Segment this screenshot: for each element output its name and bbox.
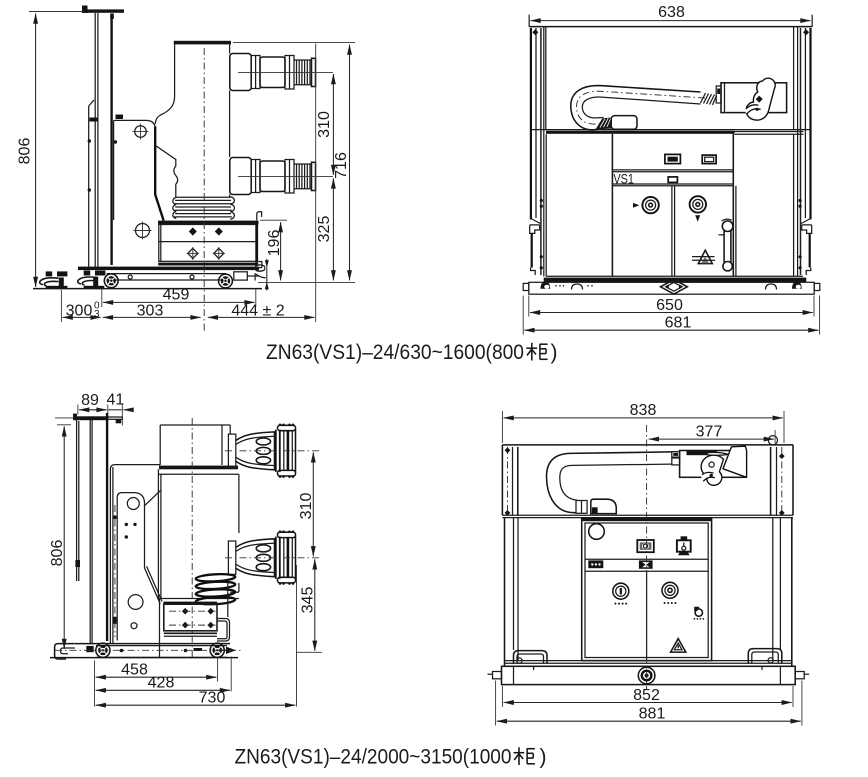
svg-text:ZN63(VS1)–24/630~1600(800: ZN63(VS1)–24/630~1600(800 — [266, 341, 524, 364]
svg-text:377: 377 — [696, 423, 723, 440]
svg-text:730: 730 — [199, 689, 226, 706]
svg-text:444 ± 2: 444 ± 2 — [231, 302, 284, 319]
svg-text:310: 310 — [316, 111, 333, 138]
svg-text:41: 41 — [107, 392, 125, 409]
svg-text:): ) — [551, 341, 558, 364]
svg-text:881: 881 — [639, 705, 666, 722]
svg-text:806: 806 — [49, 540, 66, 567]
svg-text:681: 681 — [665, 314, 692, 331]
svg-text:325: 325 — [316, 216, 333, 243]
svg-text:806: 806 — [17, 138, 34, 165]
svg-text:300: 300 — [66, 302, 93, 319]
svg-text:345: 345 — [300, 587, 317, 614]
svg-text:428: 428 — [148, 675, 175, 692]
svg-text:70: 70 — [252, 264, 269, 282]
svg-text:838: 838 — [630, 402, 657, 419]
svg-text:196: 196 — [266, 230, 283, 257]
svg-text:89: 89 — [81, 392, 99, 409]
svg-text:303: 303 — [137, 302, 164, 319]
svg-text:852: 852 — [633, 687, 660, 704]
svg-text:459: 459 — [163, 287, 190, 304]
svg-text:638: 638 — [658, 4, 685, 21]
svg-text:): ) — [540, 746, 547, 769]
svg-text:458: 458 — [121, 661, 148, 678]
svg-text:650: 650 — [656, 297, 683, 314]
svg-text:ZN63(VS1)–24/2000~3150(1000: ZN63(VS1)–24/2000~3150(1000 — [235, 746, 512, 769]
svg-text:3: 3 — [94, 309, 100, 320]
svg-text:310: 310 — [298, 493, 315, 520]
svg-text:716: 716 — [333, 152, 350, 179]
